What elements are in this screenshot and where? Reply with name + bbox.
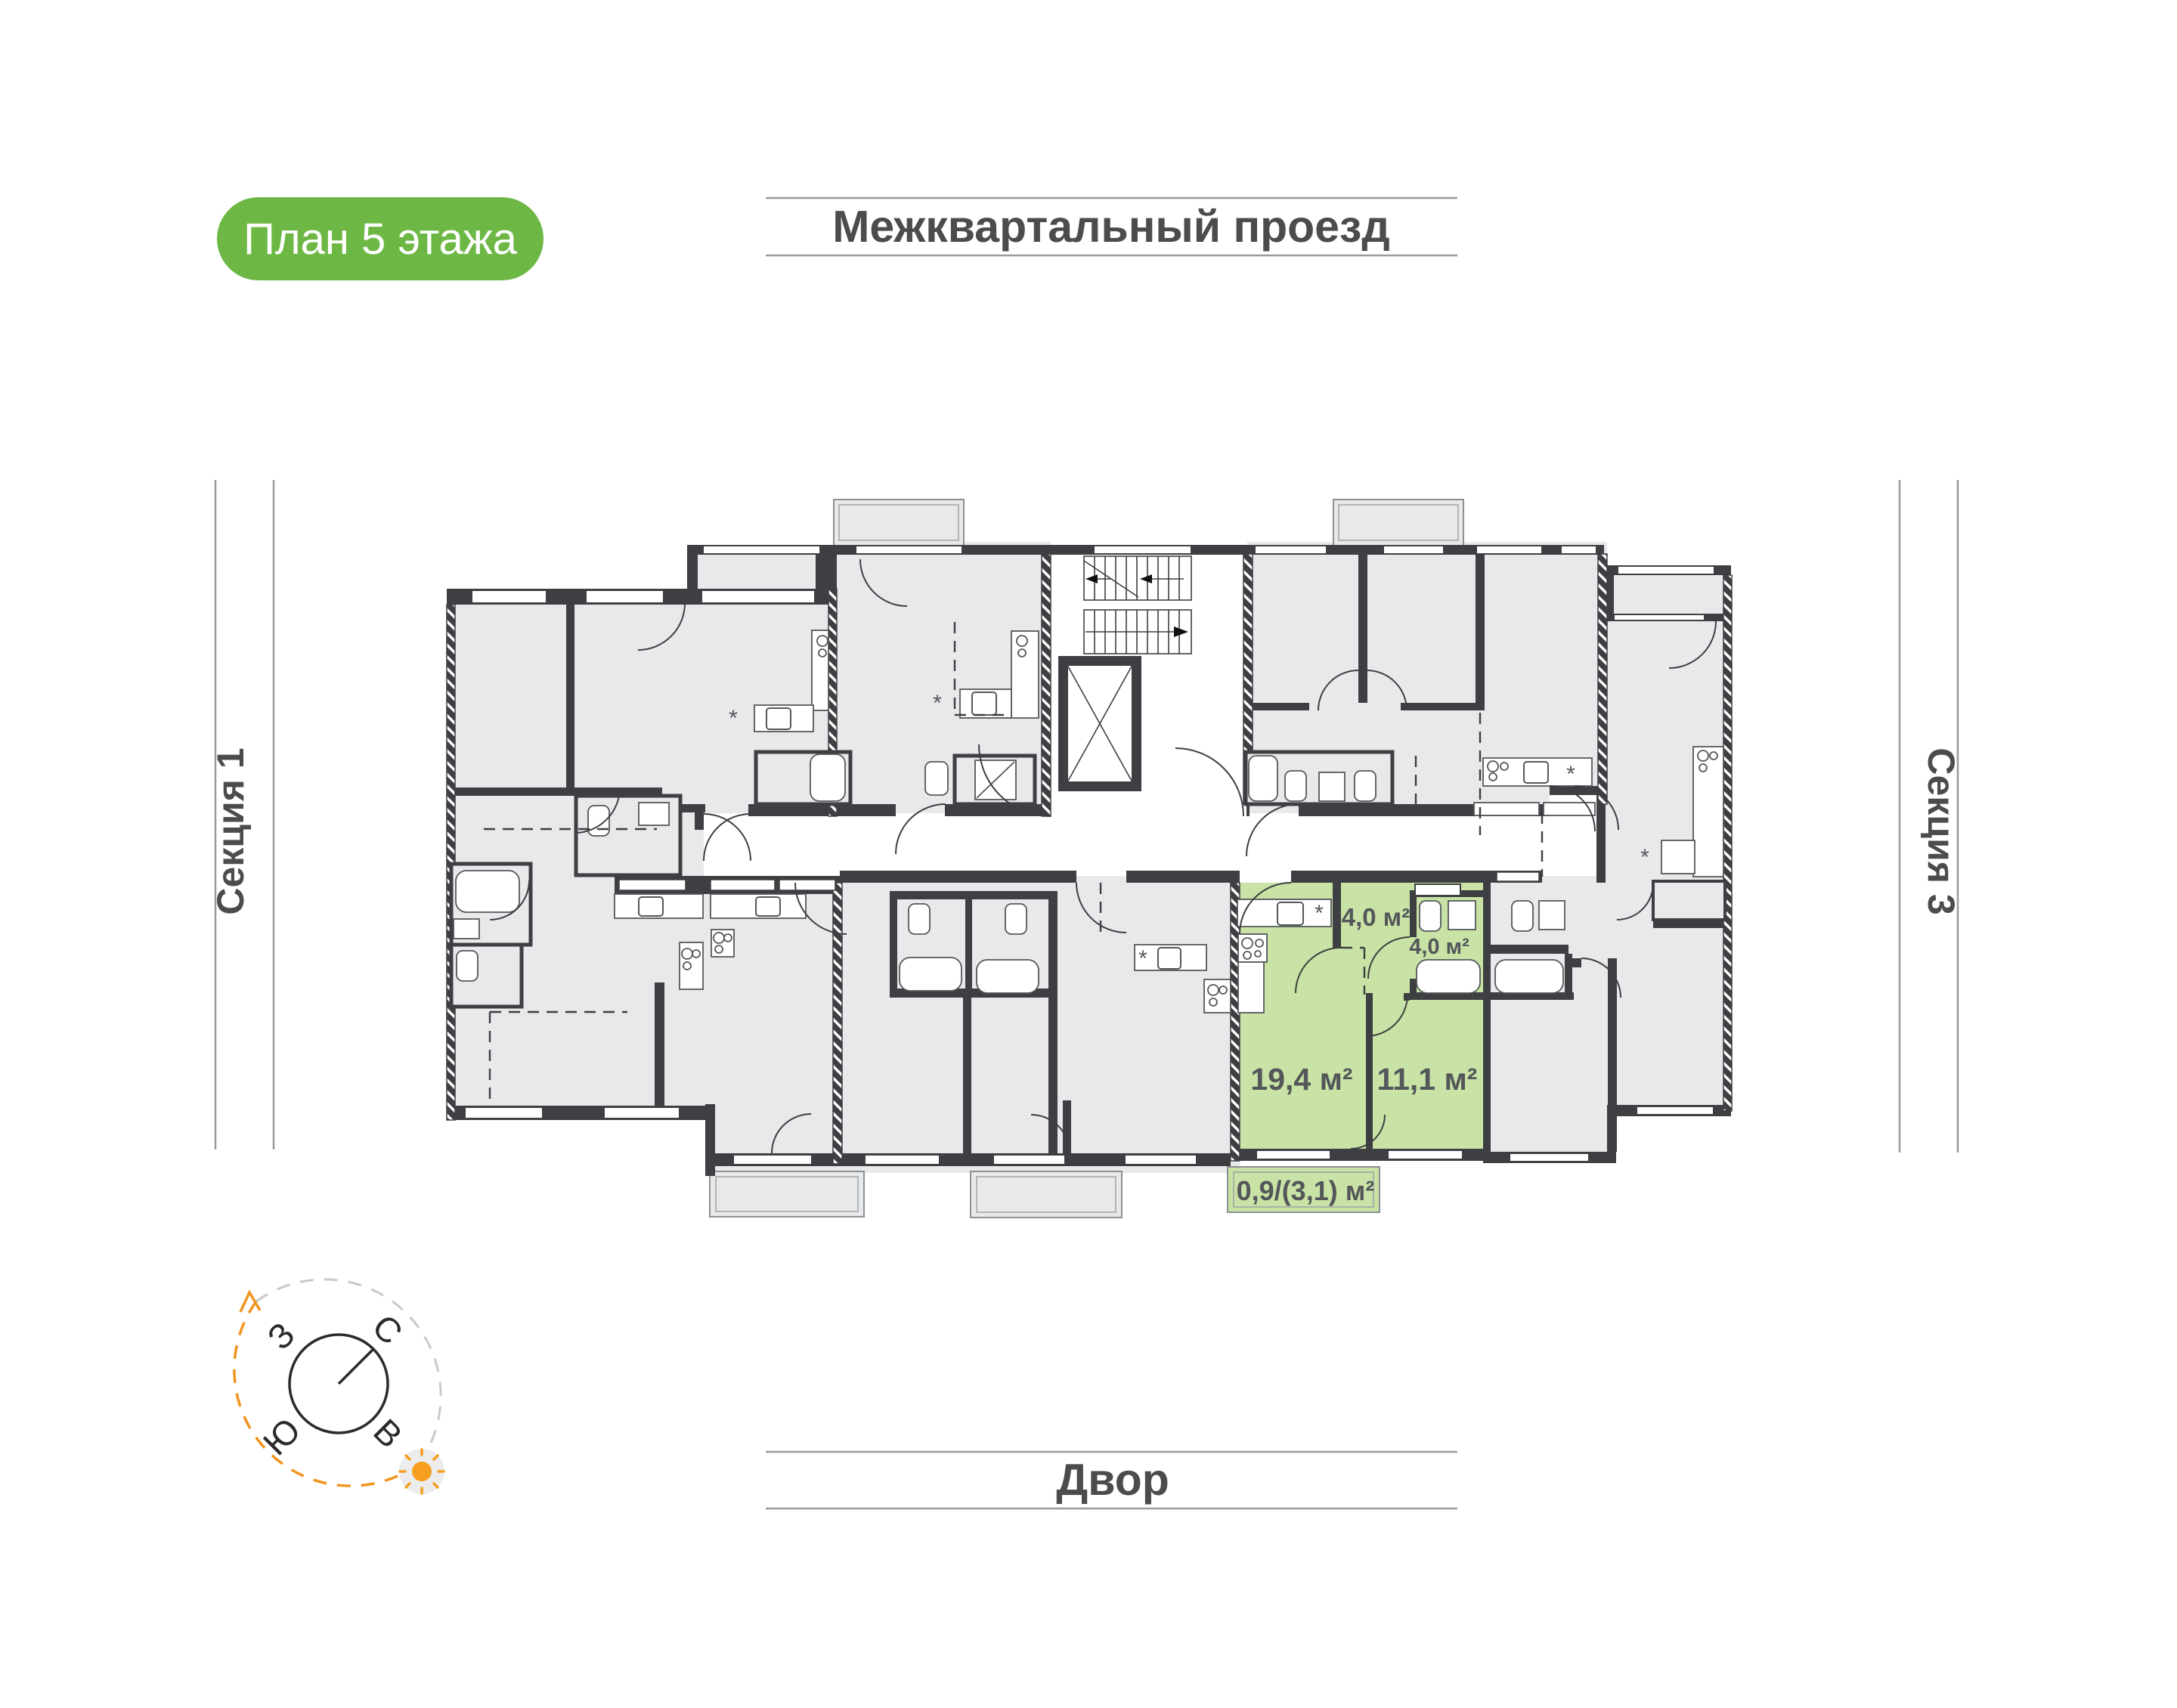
svg-text:*: *	[729, 706, 738, 731]
svg-text:4,0 м²: 4,0 м²	[1409, 935, 1469, 959]
svg-text:План 5 этажа: План 5 этажа	[243, 215, 518, 264]
svg-text:Двор: Двор	[1056, 1455, 1169, 1505]
svg-text:*: *	[1566, 762, 1575, 787]
svg-text:19,4 м²: 19,4 м²	[1250, 1062, 1352, 1097]
svg-text:0,9/(3,1) м²: 0,9/(3,1) м²	[1237, 1175, 1375, 1206]
svg-text:11,1 м²: 11,1 м²	[1377, 1062, 1478, 1097]
svg-text:Секция 1: Секция 1	[209, 747, 252, 914]
svg-text:*: *	[933, 691, 942, 716]
svg-text:*: *	[1138, 946, 1147, 971]
svg-text:Межквартальный проезд: Межквартальный проезд	[832, 202, 1390, 252]
svg-text:*: *	[1640, 845, 1649, 870]
svg-text:4,0 м²: 4,0 м²	[1342, 903, 1410, 931]
svg-text:*: *	[1315, 901, 1324, 926]
svg-text:Секция 3: Секция 3	[1920, 747, 1962, 914]
